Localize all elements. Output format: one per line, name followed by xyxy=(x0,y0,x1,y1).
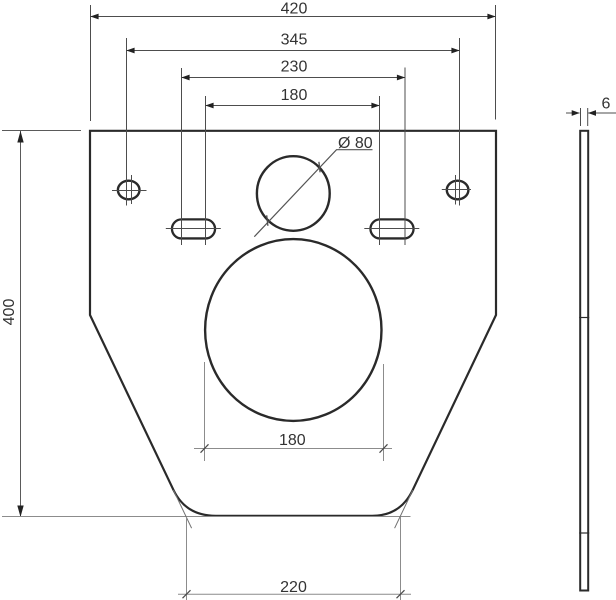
svg-text:420: 420 xyxy=(281,1,308,18)
svg-text:220: 220 xyxy=(280,579,307,596)
svg-text:400: 400 xyxy=(1,299,18,326)
svg-text:230: 230 xyxy=(281,59,308,76)
svg-text:345: 345 xyxy=(281,31,308,48)
svg-text:180: 180 xyxy=(279,432,306,449)
svg-text:180: 180 xyxy=(281,87,308,104)
svg-text:6: 6 xyxy=(602,96,611,113)
svg-text:Ø 80: Ø 80 xyxy=(338,135,373,152)
